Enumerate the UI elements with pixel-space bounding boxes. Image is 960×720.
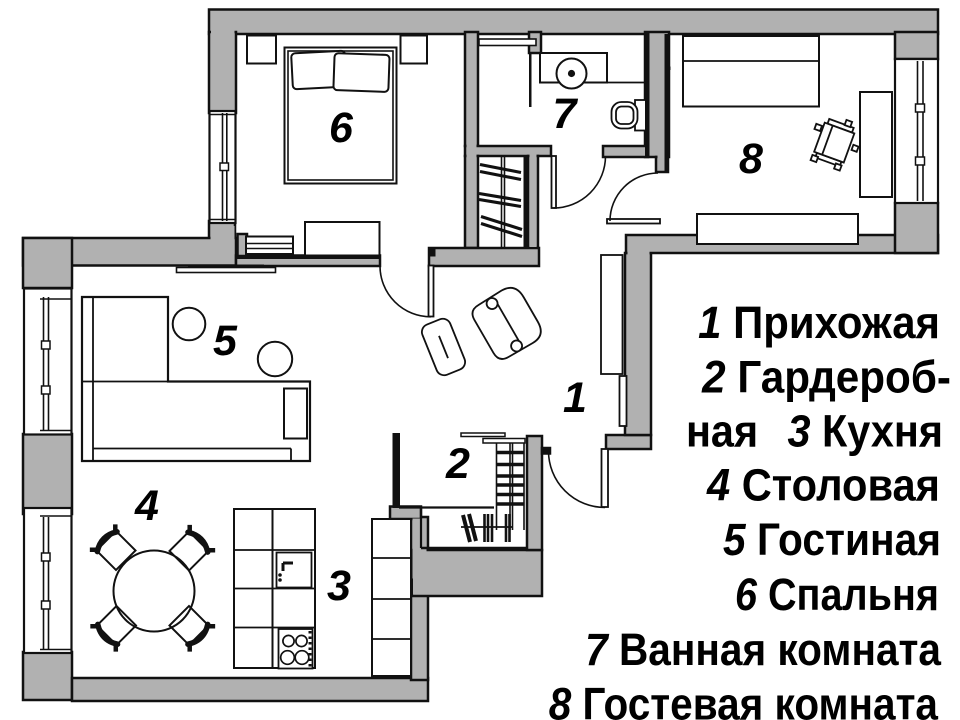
svg-text:8 Гостевая комната: 8 Гостевая комната [549,680,939,720]
svg-text:4 Столовая: 4 Столовая [706,461,940,511]
svg-text:2: 2 [445,440,470,488]
svg-text:7: 7 [553,90,579,138]
svg-text:1: 1 [563,374,587,422]
svg-text:6: 6 [329,104,354,152]
svg-text:5: 5 [213,317,238,365]
svg-text:ная3 Кухня: ная3 Кухня [686,407,943,457]
svg-text:8: 8 [739,135,763,183]
svg-text:6 Спальня: 6 Спальня [735,570,939,620]
svg-text:3: 3 [327,562,351,610]
svg-text:1 Прихожая: 1 Прихожая [698,299,940,349]
svg-text:7 Ванная комната: 7 Ванная комната [585,625,942,675]
svg-text:4: 4 [134,482,159,530]
svg-text:5 Гостиная: 5 Гостиная [723,515,941,565]
svg-text:2 Гардероб-: 2 Гардероб- [701,352,951,403]
